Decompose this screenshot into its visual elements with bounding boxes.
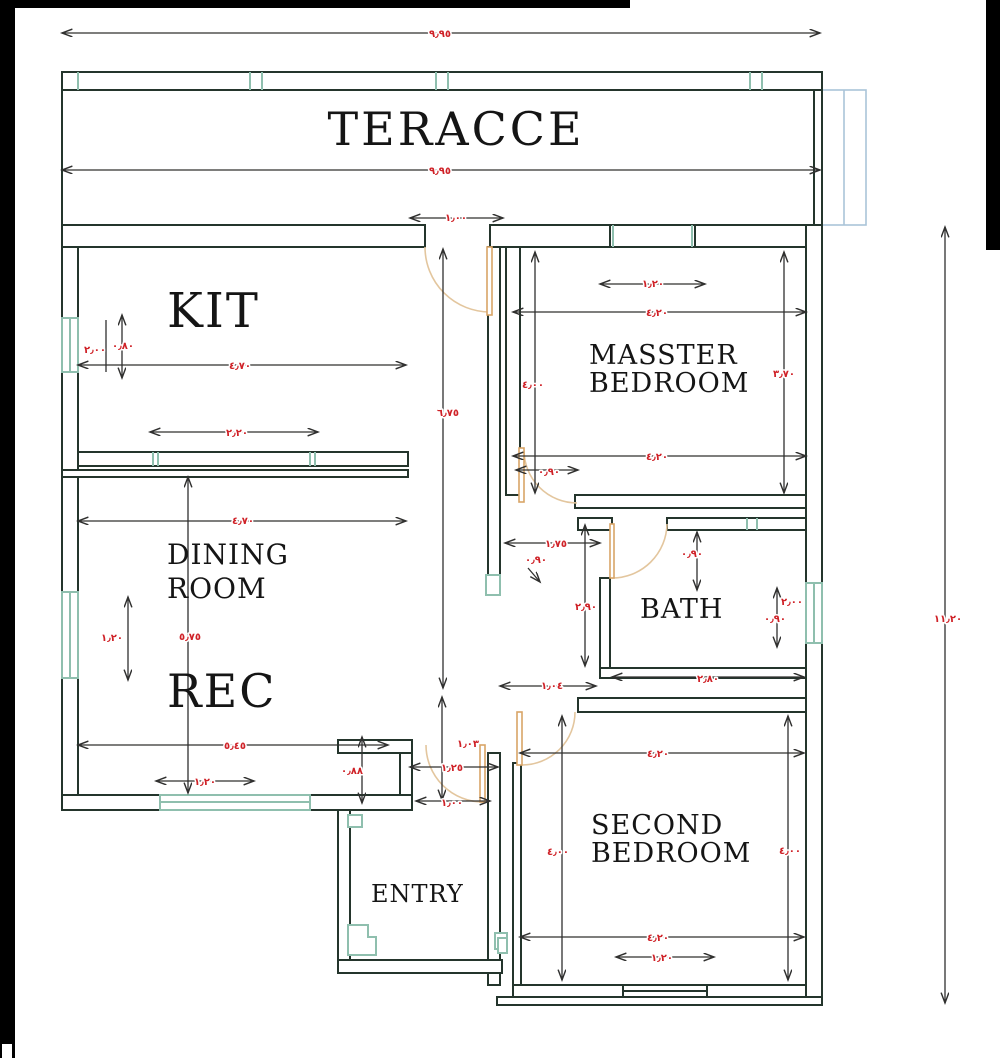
room-label-second-2: BEDROOM bbox=[591, 838, 751, 869]
room-label-dining-2: ROOM bbox=[167, 572, 267, 605]
room-label-terrace: TERACCE bbox=[327, 102, 584, 156]
dim-kitchen-width: ٤٫٧٠ bbox=[229, 361, 251, 372]
entry-door-leaf bbox=[480, 745, 485, 802]
dim-kitchen-window: ٢٫٠٠ bbox=[84, 345, 106, 356]
dim-entry-bottom: ١٫٠٠ bbox=[441, 798, 463, 809]
doors bbox=[425, 247, 667, 802]
room-label-second-1: SECOND bbox=[591, 810, 723, 841]
room-label-entry: ENTRY bbox=[371, 880, 464, 908]
dim-terrace-door: ١٫٠٠ bbox=[445, 213, 467, 224]
dim-second-top: ٤٫٢٠ bbox=[647, 749, 669, 760]
dim-master-window: ١٫٢٠ bbox=[642, 279, 664, 290]
dim-total-height-right: ١١٫٢٠ bbox=[934, 614, 962, 625]
dim-master-top: ٤٫٢٠ bbox=[646, 308, 668, 319]
floor-plan-page: ٩٫٩٥ ٩٫٩٥ ١٫٠٠ ١٫٢٠ ٤٫٢٠ ٤٫٠٠ ٣٫٧٠ ٤٫٢٠ … bbox=[0, 0, 1000, 1058]
terrace-door-leaf bbox=[487, 247, 492, 315]
dim-hall-door: ٠٫٩٠ bbox=[525, 555, 547, 566]
dim-second-window: ١٫٢٠ bbox=[651, 953, 673, 964]
room-label-kitchen: KIT bbox=[167, 283, 260, 339]
dim-total-width-top: ٩٫٩٥ bbox=[429, 29, 451, 40]
dim-kitchen-side: ٠٫٨٠ bbox=[112, 341, 134, 352]
dim-entry-door: ١٫٠٣ bbox=[457, 739, 479, 750]
room-label-bath: BATH bbox=[640, 594, 723, 625]
bath-door-leaf bbox=[610, 524, 614, 578]
dim-bath-bottom: ٢٫٨٠ bbox=[697, 674, 719, 685]
dim-master-bottom: ٤٫٢٠ bbox=[646, 452, 668, 463]
dim-terrace-width: ٩٫٩٥ bbox=[429, 166, 451, 177]
floor-plan-svg: ٩٫٩٥ ٩٫٩٥ ١٫٠٠ ١٫٢٠ ٤٫٢٠ ٤٫٠٠ ٣٫٧٠ ٤٫٢٠ … bbox=[0, 0, 1000, 1058]
dim-kitchen-counter: ٢٫٢٠ bbox=[226, 428, 248, 439]
dim-bath-window: ٠٫٩٠ bbox=[764, 614, 786, 625]
dim-reception-window-w: ١٫٢٠ bbox=[194, 777, 216, 788]
dim-second-left: ٤٫٠٠ bbox=[547, 847, 569, 858]
room-label-master-1: MASSTER bbox=[589, 340, 738, 371]
second-bedroom-door-leaf bbox=[517, 712, 522, 765]
dim-reception-height: ٥٫٧٥ bbox=[179, 632, 201, 643]
room-label-master-2: BEDROOM bbox=[589, 368, 749, 399]
dim-bath-right: ٢٫٠٠ bbox=[781, 597, 803, 608]
dim-master-left: ٤٫٠٠ bbox=[522, 380, 544, 391]
dim-master-door: ٠٫٩٠ bbox=[538, 467, 560, 478]
room-label-reception: REC bbox=[167, 664, 276, 718]
dim-entry-side: ٠٫٨٨ bbox=[341, 766, 363, 777]
dim-reception-bottom: ٥٫٤٥ bbox=[224, 741, 246, 752]
dim-bath-door: ٠٫٩٠ bbox=[681, 549, 703, 560]
dim-entry-top: ١٫٢٥ bbox=[441, 763, 463, 774]
dim-master-right: ٣٫٧٠ bbox=[773, 369, 795, 380]
dim-second-bottom: ٤٫٢٠ bbox=[647, 933, 669, 944]
dim-hall-width: ١٫٧٥ bbox=[545, 539, 567, 550]
dim-dining-width: ٤٫٧٠ bbox=[232, 516, 254, 527]
dim-bath-left: ٢٫٩٠ bbox=[575, 602, 597, 613]
dim-second-door: ١٫٠٤ bbox=[541, 681, 563, 692]
dim-second-right: ٤٫٠٠ bbox=[779, 846, 801, 857]
exterior-stairs bbox=[822, 90, 866, 225]
room-label-dining-1: DINING bbox=[167, 538, 289, 571]
dim-reception-window-h: ١٫٢٠ bbox=[101, 633, 123, 644]
dim-hall-height: ٦٫٧٥ bbox=[437, 408, 459, 419]
